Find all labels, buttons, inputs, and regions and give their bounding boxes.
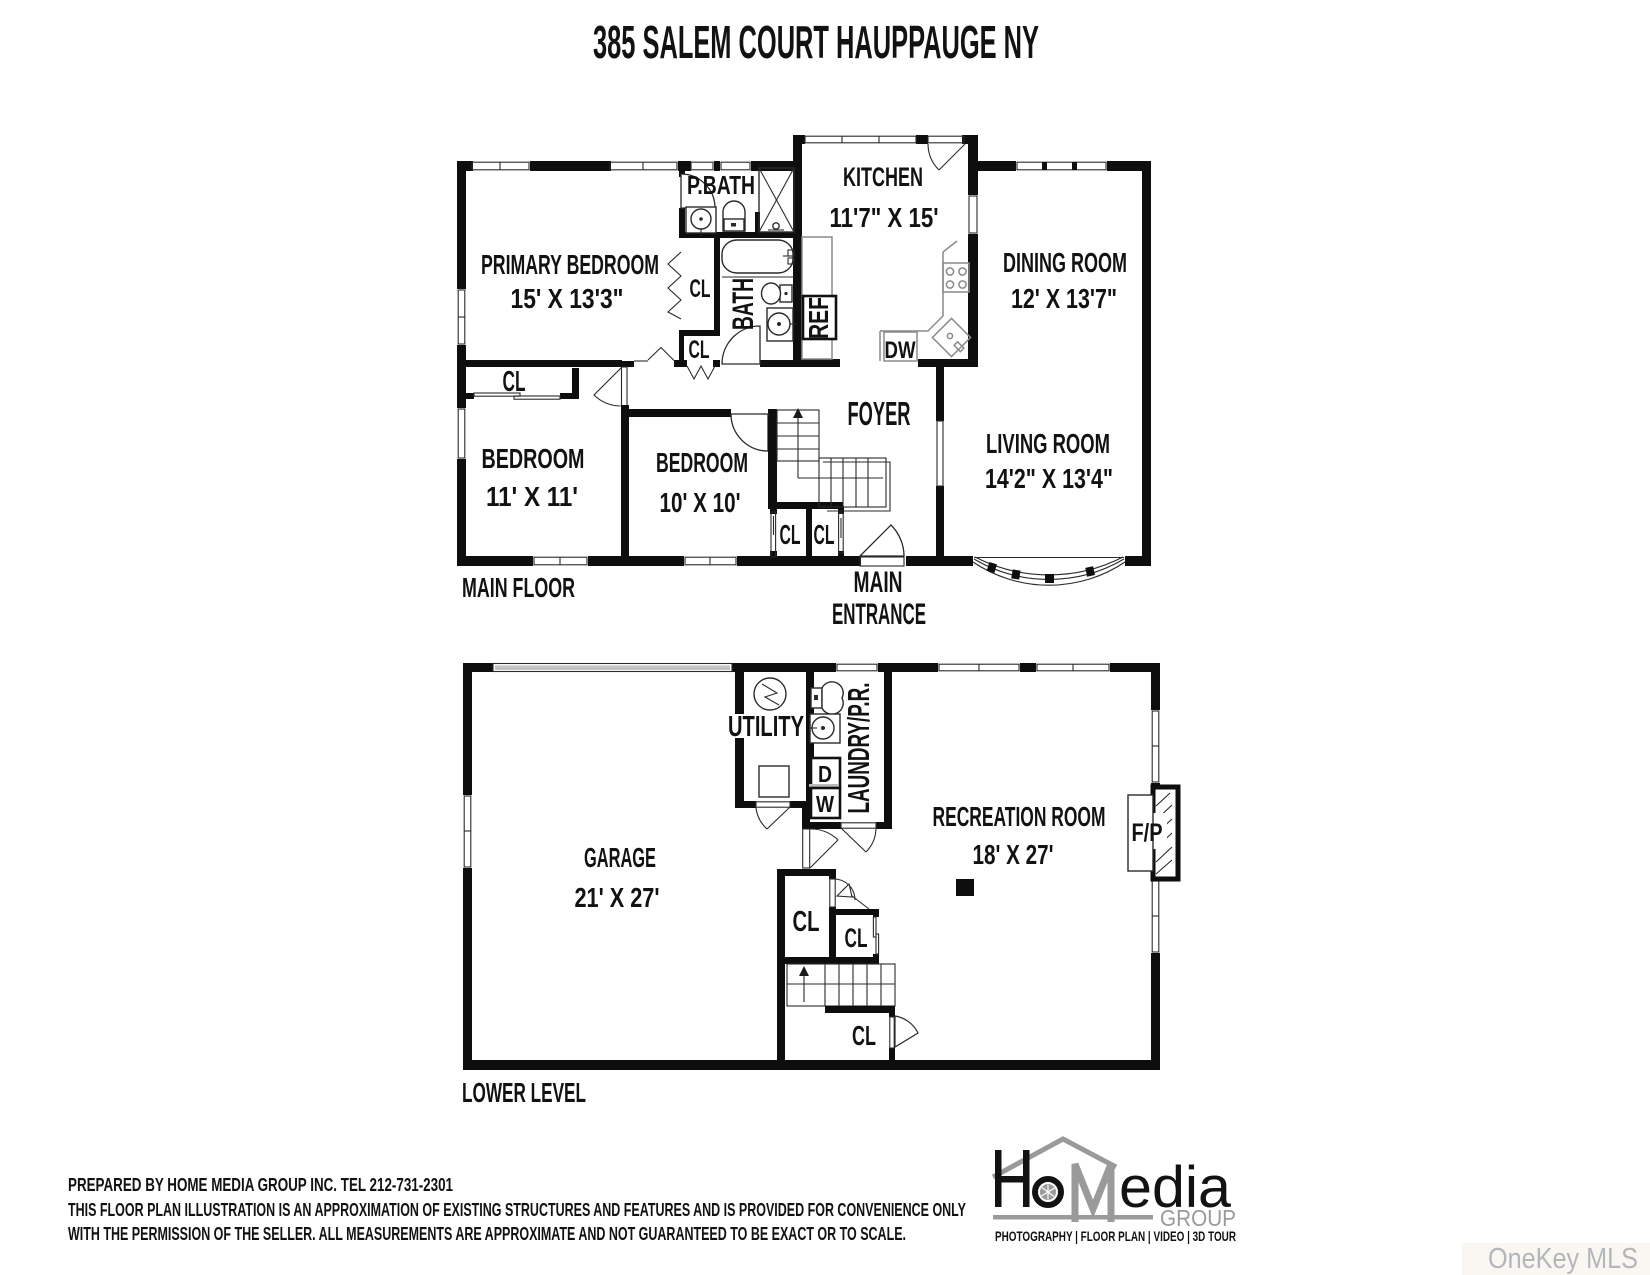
- svg-text:11'7" X 15': 11'7" X 15': [830, 202, 939, 233]
- svg-text:10' X 10': 10' X 10': [660, 487, 741, 518]
- svg-text:CL: CL: [814, 519, 835, 550]
- svg-text:385 SALEM COURT HAUPPAUGE NY: 385 SALEM COURT HAUPPAUGE NY: [593, 16, 1039, 68]
- svg-text:12' X 13'7": 12' X 13'7": [1011, 283, 1117, 314]
- svg-text:CL: CL: [503, 366, 526, 398]
- svg-text:PHOTOGRAPHY | FLOOR PLAN | VID: PHOTOGRAPHY | FLOOR PLAN | VIDEO | 3D TO…: [995, 1228, 1236, 1244]
- svg-text:BEDROOM: BEDROOM: [482, 443, 585, 474]
- svg-text:D: D: [818, 761, 832, 787]
- svg-text:REF: REF: [803, 297, 834, 339]
- svg-text:PRIMARY BEDROOM: PRIMARY BEDROOM: [481, 249, 659, 280]
- svg-text:MAIN FLOOR: MAIN FLOOR: [462, 572, 575, 603]
- svg-text:KITCHEN: KITCHEN: [843, 162, 923, 192]
- svg-text:UTILITY: UTILITY: [728, 711, 804, 743]
- svg-text:CL: CL: [780, 519, 801, 550]
- svg-text:MAIN: MAIN: [854, 566, 903, 599]
- svg-text:BEDROOM: BEDROOM: [656, 447, 748, 478]
- svg-text:CL: CL: [845, 923, 868, 953]
- svg-text:CL: CL: [852, 1020, 876, 1051]
- svg-text:14'2" X 13'4": 14'2" X 13'4": [985, 463, 1113, 494]
- svg-text:18' X 27': 18' X 27': [973, 839, 1054, 870]
- svg-text:THIS FLOOR PLAN ILLUSTRATION I: THIS FLOOR PLAN ILLUSTRATION IS AN APPRO…: [68, 1200, 966, 1220]
- svg-text:CL: CL: [793, 906, 820, 938]
- svg-text:FOYER: FOYER: [848, 395, 911, 432]
- svg-text:RECREATION ROOM: RECREATION ROOM: [933, 801, 1106, 832]
- svg-text:CL: CL: [689, 336, 710, 364]
- svg-text:WITH THE PERMISSION OF THE SEL: WITH THE PERMISSION OF THE SELLER. ALL M…: [68, 1224, 906, 1244]
- svg-text:OneKey MLS: OneKey MLS: [1488, 1243, 1638, 1275]
- svg-text:BATH: BATH: [727, 278, 760, 330]
- svg-text:PREPARED BY HOME MEDIA GROUP: PREPARED BY HOME MEDIA GROUP INC. TEL 21…: [68, 1175, 453, 1195]
- svg-text:W: W: [816, 791, 834, 817]
- svg-text:ENTRANCE: ENTRANCE: [832, 598, 926, 631]
- svg-text:21' X 27': 21' X 27': [575, 882, 660, 913]
- svg-text:P.BATH: P.BATH: [687, 170, 755, 200]
- svg-text:F/P: F/P: [1132, 819, 1163, 847]
- svg-text:DW: DW: [885, 337, 916, 364]
- svg-text:CL: CL: [690, 275, 711, 303]
- svg-text:15' X 13'3": 15' X 13'3": [511, 283, 624, 314]
- svg-text:GARAGE: GARAGE: [584, 842, 656, 873]
- svg-text:11' X 11': 11' X 11': [486, 481, 578, 512]
- svg-text:DINING ROOM: DINING ROOM: [1003, 247, 1127, 278]
- svg-text:LIVING ROOM: LIVING ROOM: [986, 428, 1110, 459]
- svg-text:LOWER LEVEL: LOWER LEVEL: [462, 1077, 586, 1108]
- svg-text:LAUNDRY/P.R.: LAUNDRY/P.R.: [841, 683, 876, 814]
